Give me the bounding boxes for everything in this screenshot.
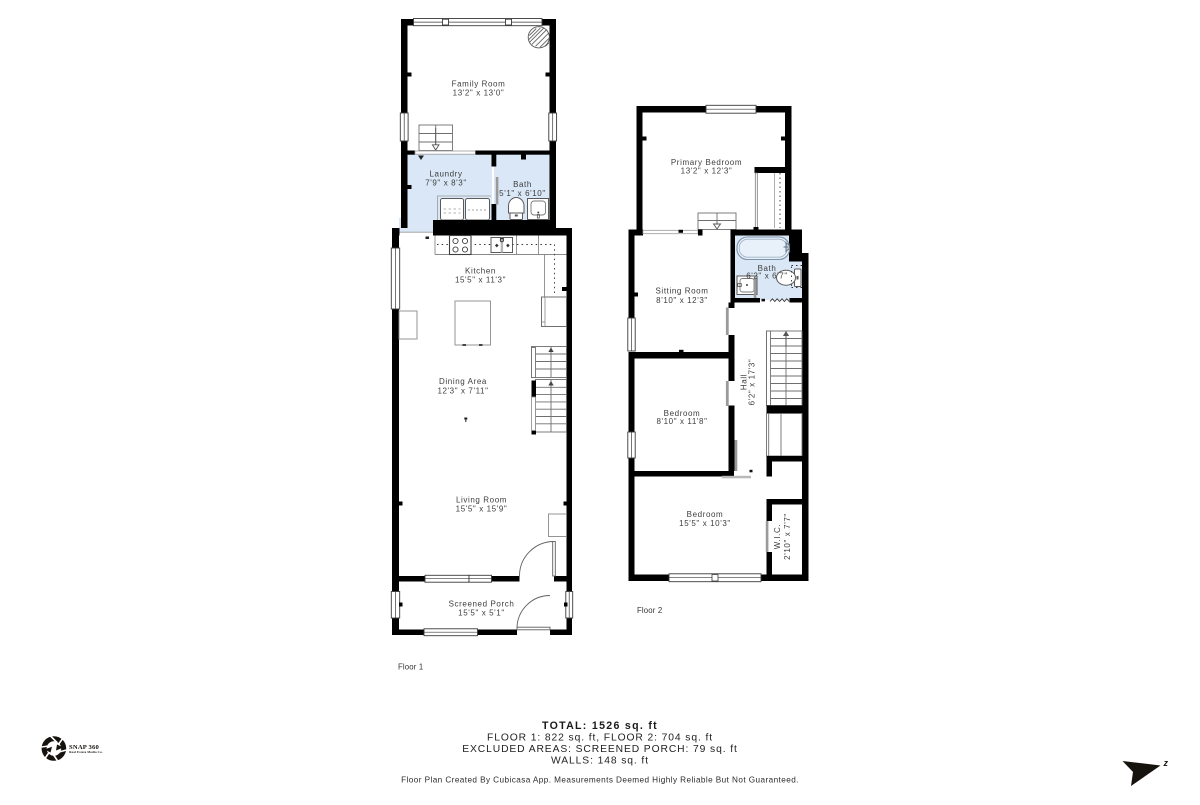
svg-text:6'2" x 17'3": 6'2" x 17'3" [748,359,757,406]
svg-text:Family Room: Family Room [452,80,506,89]
svg-text:Living Room: Living Room [456,495,507,504]
svg-text:Bedroom: Bedroom [687,510,724,519]
svg-text:7'9" x 8'3": 7'9" x 8'3" [425,179,467,188]
svg-text:W.I.C.: W.I.C. [773,524,782,549]
svg-text:15'5" x 10'3": 15'5" x 10'3" [679,519,731,528]
svg-text:Kitchen: Kitchen [465,267,496,276]
svg-text:FLOOR 1: 822 sq. ft, FLOOR 2:: FLOOR 1: 822 sq. ft, FLOOR 2: 704 sq. ft [487,733,713,744]
svg-text:2'10" x 7'7": 2'10" x 7'7" [783,513,792,560]
svg-text:TOTAL: 1526 sq. ft: TOTAL: 1526 sq. ft [542,720,658,732]
svg-text:Dining Area: Dining Area [439,377,487,386]
svg-text:13'2" x 12'3": 13'2" x 12'3" [681,167,733,176]
svg-text:z: z [1163,758,1169,768]
svg-text:Floor 1: Floor 1 [398,663,423,672]
svg-text:Floor Plan Created By Cubicasa: Floor Plan Created By Cubicasa App. Meas… [401,776,799,785]
svg-text:15'5" x 11'3": 15'5" x 11'3" [455,276,506,285]
svg-text:13'2" x 13'0": 13'2" x 13'0" [453,89,505,98]
svg-text:EXCLUDED AREAS: SCREENED PORCH: EXCLUDED AREAS: SCREENED PORCH: 79 sq. f… [462,744,738,755]
svg-text:WALLS: 148 sq. ft: WALLS: 148 sq. ft [551,755,649,766]
svg-text:6'2" x 6'7": 6'2" x 6'7" [746,271,788,280]
svg-text:Screened Porch: Screened Porch [449,599,515,608]
svg-text:Laundry: Laundry [429,170,462,179]
svg-text:Real Estate Media Co.: Real Estate Media Co. [69,750,103,754]
svg-text:15'5" x 5'1": 15'5" x 5'1" [458,609,505,618]
svg-text:8'10" x 11'8": 8'10" x 11'8" [656,417,707,426]
svg-text:5'1" x 6'10": 5'1" x 6'10" [499,189,546,198]
svg-text:12'3" x 7'11": 12'3" x 7'11" [437,387,488,396]
svg-text:Floor 2: Floor 2 [637,606,662,615]
svg-text:Sitting Room: Sitting Room [656,287,709,296]
svg-text:8'10" x 12'3": 8'10" x 12'3" [656,296,708,305]
svg-text:15'5" x 15'9": 15'5" x 15'9" [456,504,508,513]
svg-text:Bath: Bath [513,180,532,189]
